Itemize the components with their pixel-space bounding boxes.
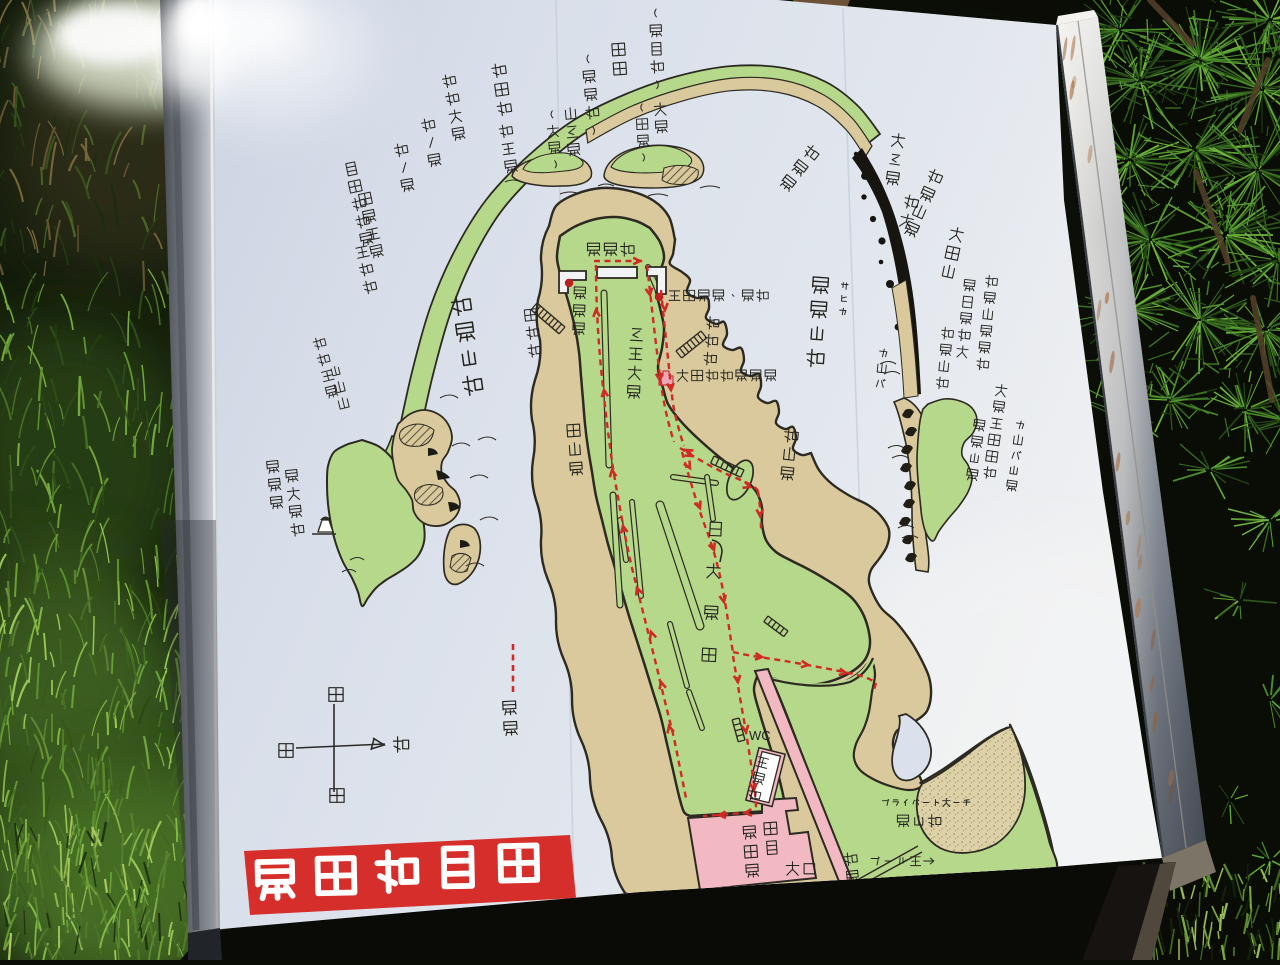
svg-text:WC: WC (749, 728, 771, 743)
